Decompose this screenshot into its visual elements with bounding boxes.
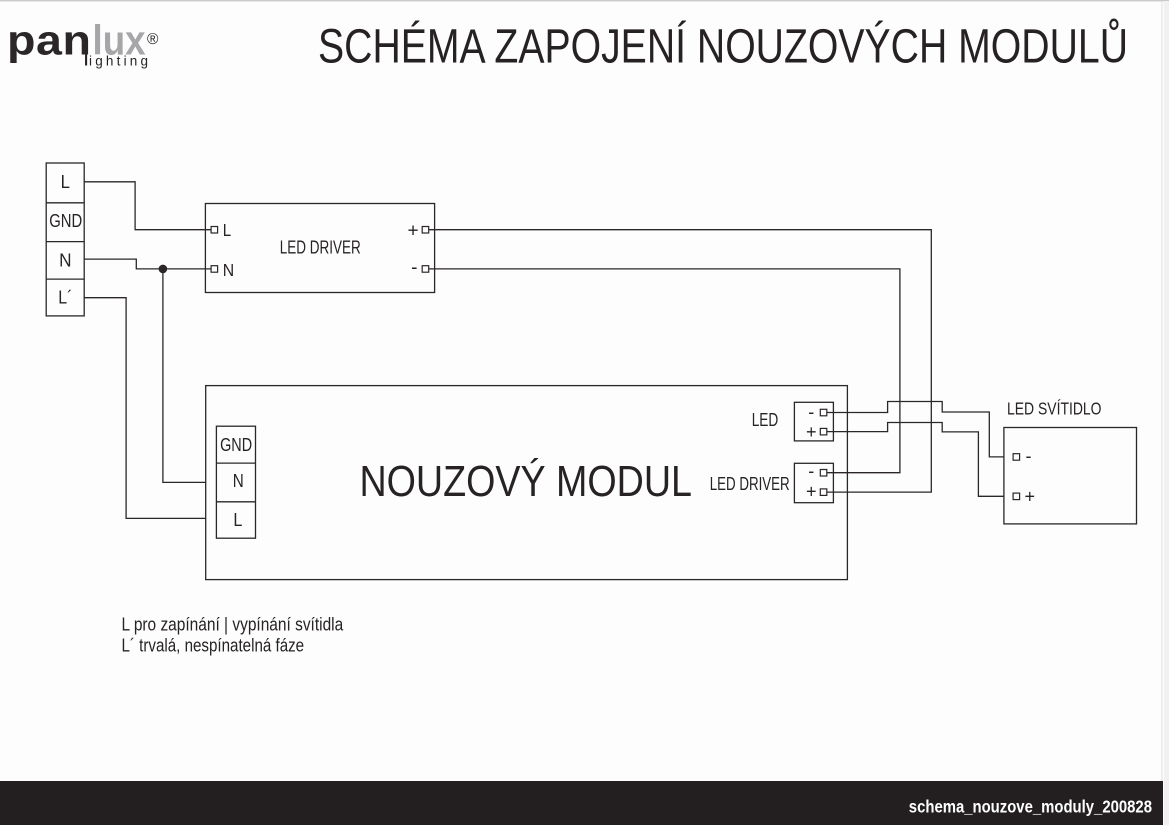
svg-text:pan: pan bbox=[7, 17, 91, 64]
svg-text:L´: L´ bbox=[58, 287, 72, 308]
svg-text:LED DRIVER: LED DRIVER bbox=[280, 238, 361, 258]
svg-text:®: ® bbox=[147, 31, 159, 48]
svg-text:+: + bbox=[806, 482, 817, 502]
svg-text:SCHÉMA ZAPOJENÍ NOUZOVÝCH MODU: SCHÉMA ZAPOJENÍ NOUZOVÝCH MODULŮ bbox=[318, 19, 1128, 74]
svg-text:-: - bbox=[411, 258, 417, 279]
svg-text:LED: LED bbox=[752, 410, 779, 430]
svg-text:+: + bbox=[806, 422, 817, 442]
svg-text:N: N bbox=[223, 260, 234, 280]
svg-text:LED DRIVER: LED DRIVER bbox=[710, 474, 790, 494]
svg-text:N: N bbox=[233, 470, 244, 491]
svg-text:L: L bbox=[61, 171, 70, 192]
svg-text:lighting: lighting bbox=[84, 52, 151, 69]
svg-text:L pro zapínání | vypínání svít: L pro zapínání | vypínání svítidla bbox=[122, 613, 344, 634]
svg-text:LED SVÍTIDLO: LED SVÍTIDLO bbox=[1007, 399, 1102, 419]
svg-text:schema_nouzove_moduly_200828: schema_nouzove_moduly_200828 bbox=[909, 796, 1152, 816]
svg-text:-: - bbox=[1026, 446, 1032, 466]
svg-text:+: + bbox=[407, 221, 418, 242]
svg-text:N: N bbox=[59, 250, 71, 271]
svg-text:NOUZOVÝ MODUL: NOUZOVÝ MODUL bbox=[359, 458, 692, 506]
svg-text:+: + bbox=[1025, 486, 1036, 506]
svg-text:-: - bbox=[808, 461, 814, 481]
svg-text:GND: GND bbox=[220, 434, 252, 455]
svg-text:-: - bbox=[808, 402, 814, 422]
svg-text:GND: GND bbox=[49, 210, 82, 231]
svg-text:L´ trvalá, nespínatelná fáze: L´ trvalá, nespínatelná fáze bbox=[122, 634, 305, 655]
svg-text:L: L bbox=[233, 509, 242, 530]
svg-text:L: L bbox=[223, 220, 231, 240]
